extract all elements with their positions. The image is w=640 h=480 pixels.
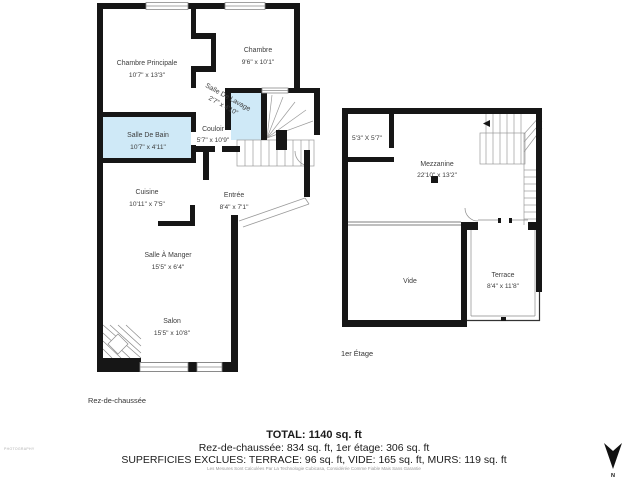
ff-stair-direction-arrow <box>483 120 490 127</box>
svg-text:Salon: Salon <box>163 318 181 325</box>
svg-text:Mezzanine: Mezzanine <box>420 161 453 168</box>
room-label-small-room: 5'3" X 5'7" <box>352 135 383 142</box>
summary-floors: Rez-de-chaussée: 834 sq. ft, 1er étage: … <box>0 442 634 454</box>
room-label-salon: Salon 15'5" x 10'8" <box>154 318 191 337</box>
floor-plan-canvas: Chambre Principale 10'7" x 13'3" Chambre… <box>0 0 640 480</box>
svg-text:Salle De Bain: Salle De Bain <box>127 132 169 139</box>
svg-text:Couloir: Couloir <box>202 126 225 133</box>
svg-text:Chambre Principale: Chambre Principale <box>117 60 178 67</box>
svg-text:Entrée: Entrée <box>224 192 244 199</box>
svg-text:8'4" x 11'8": 8'4" x 11'8" <box>487 283 520 290</box>
svg-text:5'7" x 10'9": 5'7" x 10'9" <box>197 137 230 144</box>
watermark-text: PHOTOGRAPHY <box>4 447 34 451</box>
summary-total: TOTAL: 1140 sq. ft <box>0 429 634 441</box>
room-label-cuisine: Cuisine 10'11" x 7'5" <box>129 189 165 208</box>
room-label-chambre: Chambre 9'6" x 10'1" <box>242 47 275 66</box>
gf-floor-label: Rez-de-chaussée <box>88 396 146 405</box>
svg-text:Terrace: Terrace <box>492 272 515 279</box>
svg-text:15'5" x 6'4": 15'5" x 6'4" <box>152 264 185 271</box>
gf-walls <box>97 3 320 372</box>
svg-text:10'11" x 7'5": 10'11" x 7'5" <box>129 201 165 208</box>
room-label-terrace: Terrace 8'4" x 11'8" <box>487 272 520 290</box>
svg-text:9'6" x 10'1": 9'6" x 10'1" <box>242 59 275 66</box>
svg-text:Salle À Manger: Salle À Manger <box>144 250 192 259</box>
svg-text:10'7" x 13'3": 10'7" x 13'3" <box>129 72 166 79</box>
svg-text:15'5" x 10'8": 15'5" x 10'8" <box>154 330 191 337</box>
ff-stairs-icon <box>480 114 542 225</box>
room-label-vide: Vide <box>403 278 417 285</box>
svg-text:Chambre: Chambre <box>244 47 273 54</box>
ff-mezzanine-railing <box>348 222 461 225</box>
svg-text:5'3" X 5'7": 5'3" X 5'7" <box>352 135 383 142</box>
svg-text:10'7" x 4'11": 10'7" x 4'11" <box>130 144 166 151</box>
floor-plan-page: Chambre Principale 10'7" x 13'3" Chambre… <box>0 0 640 480</box>
svg-text:8'4" x 7'1": 8'4" x 7'1" <box>220 204 249 211</box>
compass-n-label: N <box>611 473 615 479</box>
room-label-mezzanine: Mezzanine 22'10" x 13'2" <box>417 161 457 179</box>
svg-text:22'10" x 13'2": 22'10" x 13'2" <box>417 172 457 179</box>
room-label-couloir: Couloir 5'7" x 10'9" <box>197 126 230 144</box>
svg-text:Vide: Vide <box>403 278 417 285</box>
summary-disclaimer: Les Mesures Sont Calculées Par La Techno… <box>0 466 634 471</box>
ff-floor-label: 1er Étage <box>341 349 373 358</box>
room-label-chambre-principale: Chambre Principale 10'7" x 13'3" <box>117 60 178 79</box>
summary-excluded: SUPERFICIES EXCLUES: TERRACE: 96 sq. ft,… <box>0 454 634 466</box>
room-label-salle-a-manger: Salle À Manger 15'5" x 6'4" <box>144 250 192 271</box>
svg-text:Cuisine: Cuisine <box>136 189 159 196</box>
gf-entry-steps <box>239 151 310 227</box>
room-label-entree: Entrée 8'4" x 7'1" <box>220 192 249 211</box>
